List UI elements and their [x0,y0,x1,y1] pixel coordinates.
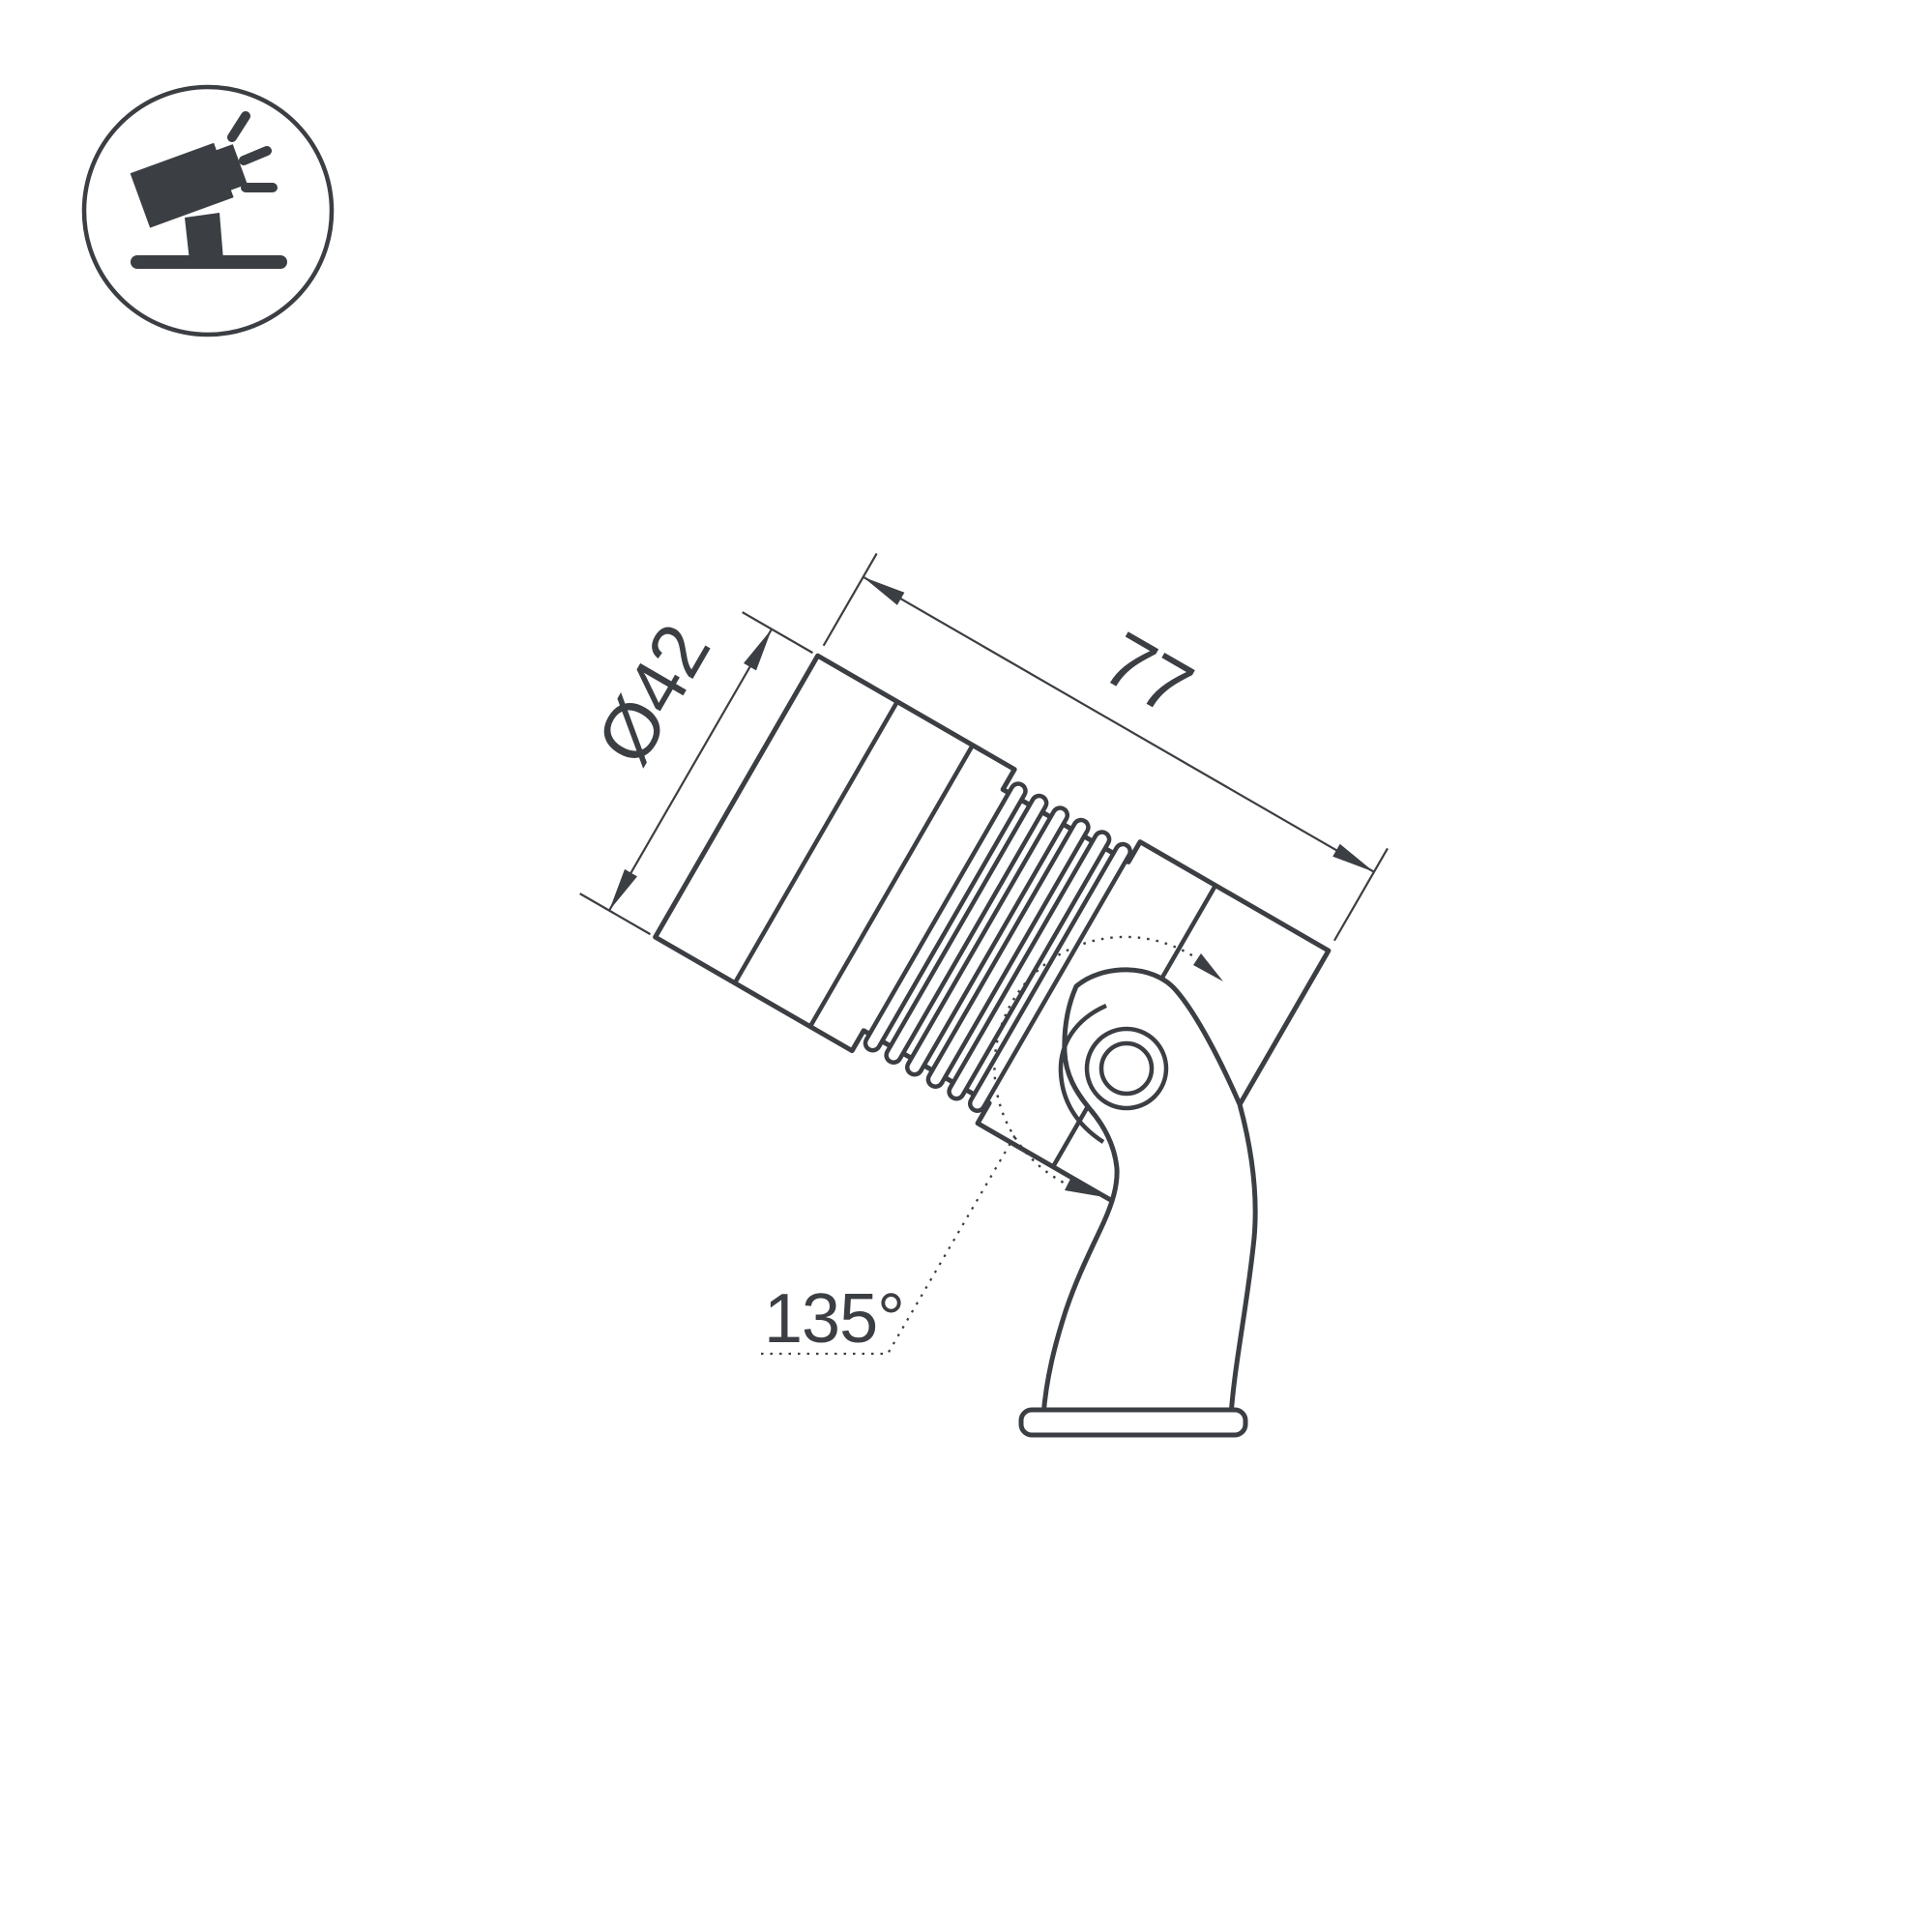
luminaire-tilted-group: Ø42 77 [512,406,1425,1232]
spotlight-stand-icon [185,213,223,261]
arrow-left-icon [860,571,904,604]
pivot-screw [1087,1029,1166,1108]
spotlight-dimension-drawing: Ø42 77 135° [0,0,1932,1932]
base-plate [1021,1410,1245,1435]
angle-label: 135° [764,1280,904,1358]
spotlight-badge-icon [84,87,332,335]
arrow-up-icon [744,626,777,670]
pivot-screw-head [1101,1043,1152,1094]
diameter-label: Ø42 [580,611,726,778]
arrow-down-icon [603,869,637,914]
technical-drawing-page: Ø42 77 135° [0,0,1932,1932]
arrow-right-icon [1332,844,1377,878]
badge-circle-outline [84,87,332,335]
length-label: 77 [1090,616,1206,733]
